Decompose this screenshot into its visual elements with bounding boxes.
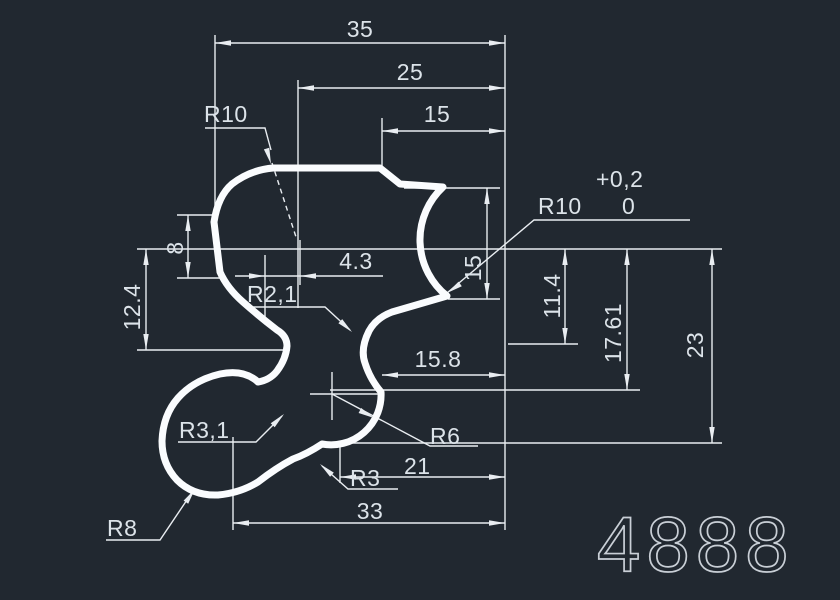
dim-15-8: 15.8 <box>415 346 462 372</box>
dim-35: 35 <box>347 16 374 42</box>
radius-label-r8: R8 <box>107 515 137 541</box>
radius-label-r6: R6 <box>430 423 460 449</box>
dim-25: 25 <box>397 59 424 85</box>
drawing-number: 4888 <box>597 500 795 588</box>
dim-15-vertical: 15 <box>460 255 486 282</box>
tolerance-upper: +0,2 <box>596 166 643 192</box>
dim-23: 23 <box>682 332 708 359</box>
dim-12-4: 12.4 <box>119 284 145 331</box>
radius-label-r10-right: R10 <box>538 193 582 219</box>
radius-label-r2-1: R2,1 <box>247 281 298 307</box>
dim-17-61: 17.61 <box>600 303 626 363</box>
dim-33: 33 <box>357 498 384 524</box>
dim-8: 8 <box>162 241 188 254</box>
dim-15-top: 15 <box>424 101 451 127</box>
tolerance-lower: 0 <box>622 193 635 219</box>
radius-label-r3-1: R3,1 <box>179 417 230 443</box>
dim-4-3: 4.3 <box>339 248 372 274</box>
cad-viewport[interactable]: 35 25 15 R10 8 12.4 R2,1 4.3 R10 +0,2 0 … <box>0 0 840 600</box>
dim-21: 21 <box>404 453 431 479</box>
radius-label-r3: R3 <box>350 465 380 491</box>
cad-drawing-canvas: 35 25 15 R10 8 12.4 R2,1 4.3 R10 +0,2 0 … <box>0 0 840 600</box>
dim-11-4: 11.4 <box>539 273 565 318</box>
radius-label-r10-left: R10 <box>204 101 248 127</box>
